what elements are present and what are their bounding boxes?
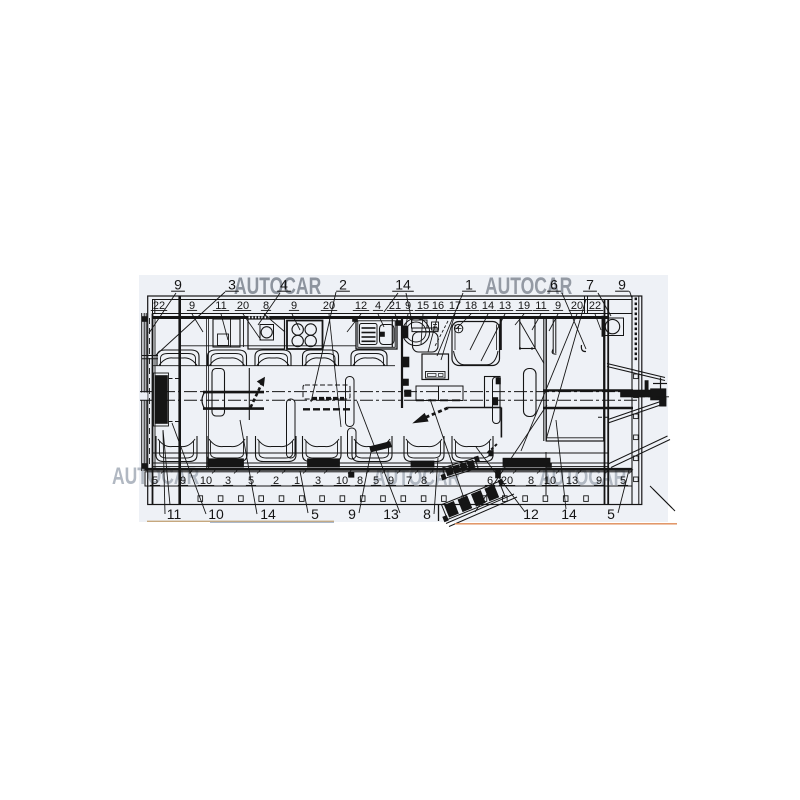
svg-text:6: 6	[550, 277, 558, 293]
svg-text:7: 7	[586, 277, 594, 293]
svg-text:1: 1	[465, 277, 473, 293]
svg-text:5: 5	[607, 506, 615, 522]
svg-text:9: 9	[174, 277, 182, 293]
svg-text:9: 9	[618, 277, 626, 293]
svg-text:13: 13	[383, 506, 399, 522]
svg-text:8: 8	[423, 506, 431, 522]
svg-text:12: 12	[523, 506, 539, 522]
svg-text:14: 14	[395, 277, 411, 293]
svg-text:5: 5	[311, 506, 319, 522]
svg-text:11: 11	[167, 506, 182, 522]
svg-text:14: 14	[561, 506, 577, 522]
svg-text:3: 3	[228, 277, 236, 293]
svg-text:10: 10	[208, 506, 224, 522]
svg-text:14: 14	[260, 506, 276, 522]
svg-text:4: 4	[280, 277, 288, 293]
svg-text:2: 2	[339, 277, 347, 293]
svg-text:9: 9	[348, 506, 356, 522]
